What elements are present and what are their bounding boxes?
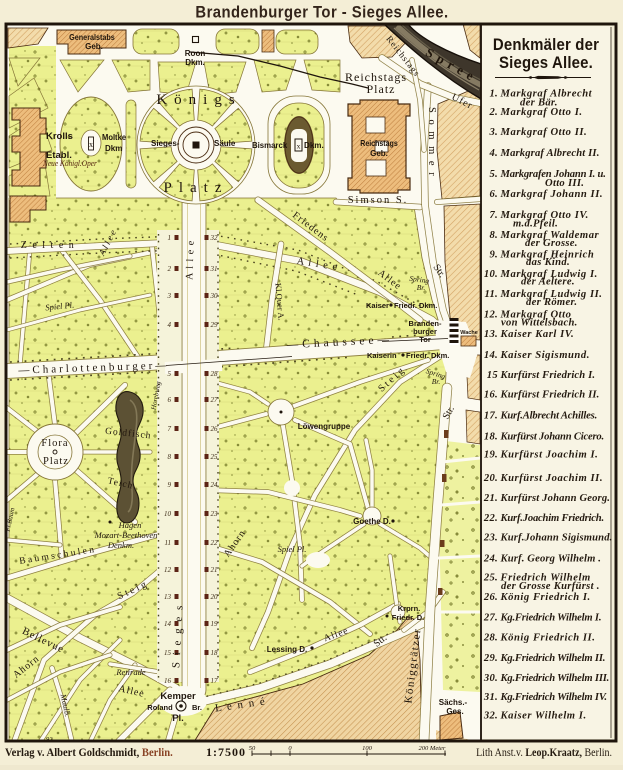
- svg-text:Säule: Säule: [214, 139, 236, 148]
- svg-text:9.: 9.: [489, 250, 498, 261]
- svg-text:1.: 1.: [489, 89, 498, 100]
- svg-text:das Kind.: das Kind.: [526, 257, 570, 268]
- svg-text:Kurfürst Joachim I.: Kurfürst Joachim I.: [500, 450, 599, 461]
- svg-text:Kurf.Johann Sigismund.: Kurf.Johann Sigismund.: [500, 533, 613, 544]
- svg-text:Goethe D.: Goethe D.: [353, 517, 391, 526]
- svg-text:21.: 21.: [483, 493, 498, 504]
- svg-text:Ges.: Ges.: [446, 707, 463, 716]
- svg-text:Bismarck: Bismarck: [252, 141, 288, 150]
- svg-text:Krolls: Krolls: [46, 131, 73, 142]
- svg-text:der Grosse Kurfürst .: der Grosse Kurfürst .: [501, 581, 600, 592]
- svg-text:22.: 22.: [483, 513, 498, 524]
- svg-text:17: 17: [211, 677, 219, 685]
- svg-text:Dkm.: Dkm.: [185, 58, 205, 67]
- svg-text:x: x: [297, 142, 301, 151]
- svg-text:23: 23: [211, 510, 219, 518]
- svg-text:27.: 27.: [483, 613, 498, 624]
- svg-text:9: 9: [168, 481, 172, 489]
- svg-text:Kg.Friedrich Wilhelm I.: Kg.Friedrich Wilhelm I.: [500, 613, 602, 624]
- svg-text:24: 24: [211, 481, 219, 489]
- svg-text:31: 31: [210, 265, 218, 273]
- svg-text:26.: 26.: [483, 592, 498, 603]
- svg-text:Generalstabs: Generalstabs: [69, 33, 115, 42]
- svg-text:Lessing D.: Lessing D.: [267, 645, 307, 654]
- svg-text:1: 1: [168, 234, 172, 242]
- svg-text:Markgraf Otto II.: Markgraf Otto II.: [500, 127, 588, 138]
- svg-text:Moltke: Moltke: [102, 133, 127, 142]
- svg-text:Spiel Pl.: Spiel Pl.: [278, 544, 307, 554]
- svg-text:3: 3: [167, 292, 172, 300]
- svg-text:100: 100: [362, 745, 373, 752]
- svg-text:Kaiser Wilhelm I.: Kaiser Wilhelm I.: [500, 711, 587, 722]
- svg-text:der Grosse.: der Grosse.: [525, 238, 578, 249]
- svg-text:x: x: [89, 140, 93, 149]
- svg-text:Otto III.: Otto III.: [545, 178, 584, 189]
- svg-text:2: 2: [168, 265, 172, 273]
- svg-text:Kurf.Joachim Friedrich.: Kurf.Joachim Friedrich.: [500, 513, 604, 524]
- svg-text:Kurfürst Johann Cicero.: Kurfürst Johann Cicero.: [500, 432, 604, 443]
- svg-text:der Aeltere.: der Aeltere.: [521, 277, 575, 288]
- svg-text:Kg.Friedrich Wilhelm IV.: Kg.Friedrich Wilhelm IV.: [500, 692, 607, 703]
- svg-text:Neue Königl.Oper: Neue Königl.Oper: [42, 159, 98, 168]
- svg-text:Friedr. D.: Friedr. D.: [392, 613, 425, 622]
- svg-text:Tor: Tor: [419, 335, 431, 344]
- svg-text:Verlag v. Albert Goldschmidt,: Verlag v. Albert Goldschmidt, Berlin.: [5, 747, 173, 759]
- svg-text:8.: 8.: [489, 230, 498, 241]
- svg-text:Denkmäler der: Denkmäler der: [493, 36, 599, 54]
- svg-text:32: 32: [210, 234, 219, 242]
- svg-text:der Römer.: der Römer.: [526, 297, 577, 308]
- svg-text:Br.: Br.: [432, 377, 441, 386]
- svg-text:Kurf.Albrecht Achilles.: Kurf.Albrecht Achilles.: [500, 411, 598, 422]
- svg-text:Platz: Platz: [43, 456, 69, 467]
- svg-text:Geb.: Geb.: [370, 149, 388, 158]
- svg-text:30.: 30.: [483, 673, 498, 684]
- svg-text:König Friedrich II.: König Friedrich II.: [500, 633, 596, 644]
- svg-text:6.: 6.: [489, 189, 498, 200]
- svg-text:18: 18: [211, 649, 219, 657]
- svg-text:Wache: Wache: [460, 330, 478, 336]
- svg-text:16: 16: [164, 677, 172, 685]
- svg-text:4: 4: [168, 321, 172, 329]
- svg-text:Friedr. Dkm.: Friedr. Dkm.: [406, 351, 449, 360]
- svg-text:Kaiser Sigismund.: Kaiser Sigismund.: [500, 350, 590, 361]
- svg-text:Löwengruppe: Löwengruppe: [298, 422, 351, 431]
- svg-text:Reichstags: Reichstags: [360, 139, 397, 149]
- svg-text:15: 15: [487, 370, 499, 381]
- svg-text:Dkm.: Dkm.: [304, 140, 324, 150]
- svg-text:20.: 20.: [483, 473, 498, 484]
- svg-text:m.d.Pfeil.: m.d.Pfeil.: [513, 219, 558, 230]
- svg-text:Lith Anst.v. Leop.Kraatz, Berl: Lith Anst.v. Leop.Kraatz, Berlin.: [476, 746, 612, 759]
- svg-text:200 Meter: 200 Meter: [419, 745, 446, 752]
- svg-text:13.: 13.: [484, 329, 498, 340]
- svg-text:3.: 3.: [488, 127, 498, 138]
- svg-text:10.: 10.: [484, 269, 498, 280]
- svg-text:20: 20: [211, 593, 219, 601]
- svg-text:12: 12: [164, 566, 172, 574]
- svg-text:Kurfürst Joachim II.: Kurfürst Joachim II.: [500, 473, 604, 484]
- svg-text:Kemper: Kemper: [160, 691, 196, 702]
- svg-text:17.: 17.: [484, 411, 498, 422]
- svg-text:14: 14: [164, 620, 172, 628]
- svg-text:Markgraf Albrecht II.: Markgraf Albrecht II.: [500, 148, 600, 159]
- svg-text:28.: 28.: [483, 633, 498, 644]
- svg-text:26: 26: [211, 425, 219, 433]
- svg-text:29.: 29.: [483, 653, 498, 664]
- svg-text:Königs: Königs: [156, 92, 241, 108]
- svg-text:Markgraf Johann II.: Markgraf Johann II.: [500, 189, 604, 200]
- svg-text:4.: 4.: [488, 148, 498, 159]
- svg-text:11.: 11.: [484, 289, 498, 300]
- svg-text:30: 30: [210, 292, 219, 300]
- svg-text:31.: 31.: [483, 692, 498, 703]
- svg-text:10: 10: [164, 510, 172, 518]
- svg-text:Geb.: Geb.: [85, 42, 103, 51]
- svg-text:Platz: Platz: [164, 180, 229, 196]
- svg-text:Kg.Friedrich Wilhelm III.: Kg.Friedrich Wilhelm III.: [500, 673, 610, 684]
- svg-text:19: 19: [211, 620, 219, 628]
- svg-text:Dkm: Dkm: [105, 144, 122, 153]
- svg-text:A l l e e: A l l e e: [184, 240, 196, 280]
- svg-text:Br.: Br.: [192, 703, 202, 712]
- svg-text:Krprn.: Krprn.: [398, 604, 421, 613]
- svg-text:27: 27: [211, 396, 219, 404]
- svg-text:25: 25: [211, 453, 219, 461]
- svg-text:21: 21: [211, 566, 218, 574]
- svg-text:14.: 14.: [484, 350, 498, 361]
- svg-text:Platz: Platz: [367, 82, 396, 96]
- svg-text:Z e l t e n: Z e l t e n: [21, 240, 76, 251]
- svg-text:Flora: Flora: [41, 438, 68, 449]
- svg-text:22: 22: [211, 539, 219, 547]
- svg-text:12.: 12.: [484, 310, 498, 321]
- svg-text:Sieges-: Sieges-: [151, 139, 180, 148]
- svg-text:Kaiser: Kaiser: [366, 301, 389, 310]
- svg-text:7: 7: [168, 425, 172, 433]
- svg-text:von Wittelsbach.: von Wittelsbach.: [501, 318, 578, 329]
- svg-text:Kaiserin: Kaiserin: [367, 351, 397, 360]
- svg-text:28: 28: [211, 370, 219, 378]
- svg-text:24.: 24.: [483, 554, 498, 565]
- svg-text:Sächs.-: Sächs.-: [439, 698, 468, 707]
- svg-text:Markgraf Otto I.: Markgraf Otto I.: [500, 107, 583, 118]
- svg-text:S o m m e r: S o m m e r: [426, 107, 437, 178]
- svg-text:5.: 5.: [489, 169, 498, 180]
- svg-text:Hagen: Hagen: [118, 520, 142, 530]
- svg-text:18.: 18.: [484, 432, 498, 443]
- svg-text:13: 13: [164, 593, 172, 601]
- svg-text:Sieges Allee.: Sieges Allee.: [499, 54, 593, 72]
- svg-text:Kurf. Georg Wilhelm .: Kurf. Georg Wilhelm .: [500, 554, 602, 565]
- svg-text:2.: 2.: [488, 107, 498, 118]
- svg-text:Kurfürst Friedrich I.: Kurfürst Friedrich I.: [500, 370, 596, 381]
- svg-text:Brandenburger Tor - Sieges A: Brandenburger Tor - Sieges Allee.: [195, 4, 448, 22]
- svg-text:Retirade: Retirade: [115, 667, 145, 677]
- svg-text:Br.: Br.: [417, 283, 426, 292]
- svg-text:6: 6: [168, 396, 172, 404]
- svg-text:Denkm.: Denkm.: [107, 540, 134, 550]
- svg-text:29: 29: [211, 321, 219, 329]
- svg-text:25.: 25.: [483, 573, 498, 584]
- svg-text:Roon: Roon: [185, 49, 206, 58]
- svg-text:23.: 23.: [483, 533, 498, 544]
- svg-text:König Friedrich I.: König Friedrich I.: [500, 592, 591, 603]
- svg-text:Simson S.: Simson S.: [348, 195, 409, 206]
- svg-text:19.: 19.: [484, 450, 498, 461]
- svg-text:Kurfürst Johann Georg.: Kurfürst Johann Georg.: [500, 493, 611, 504]
- svg-text:Friedr. Dkm.: Friedr. Dkm.: [394, 301, 437, 310]
- svg-text:11: 11: [165, 539, 171, 547]
- svg-text:Kurfürst Friedrich II.: Kurfürst Friedrich II.: [500, 390, 600, 401]
- svg-text:Roland: Roland: [147, 703, 173, 712]
- svg-text:1:7500: 1:7500: [206, 745, 246, 759]
- svg-text:32.: 32.: [483, 711, 498, 722]
- svg-text:16.: 16.: [484, 390, 498, 401]
- svg-text:Pl.: Pl.: [172, 713, 184, 724]
- svg-text:Kg.Friedrich Wilhelm II.: Kg.Friedrich Wilhelm II.: [500, 653, 606, 664]
- svg-text:Kaiser Karl IV.: Kaiser Karl IV.: [500, 329, 575, 340]
- svg-text:7.: 7.: [489, 210, 498, 221]
- svg-text:50: 50: [249, 745, 256, 752]
- svg-text:Mozart-Beethoven: Mozart-Beethoven: [94, 530, 158, 540]
- svg-text:8: 8: [168, 453, 172, 461]
